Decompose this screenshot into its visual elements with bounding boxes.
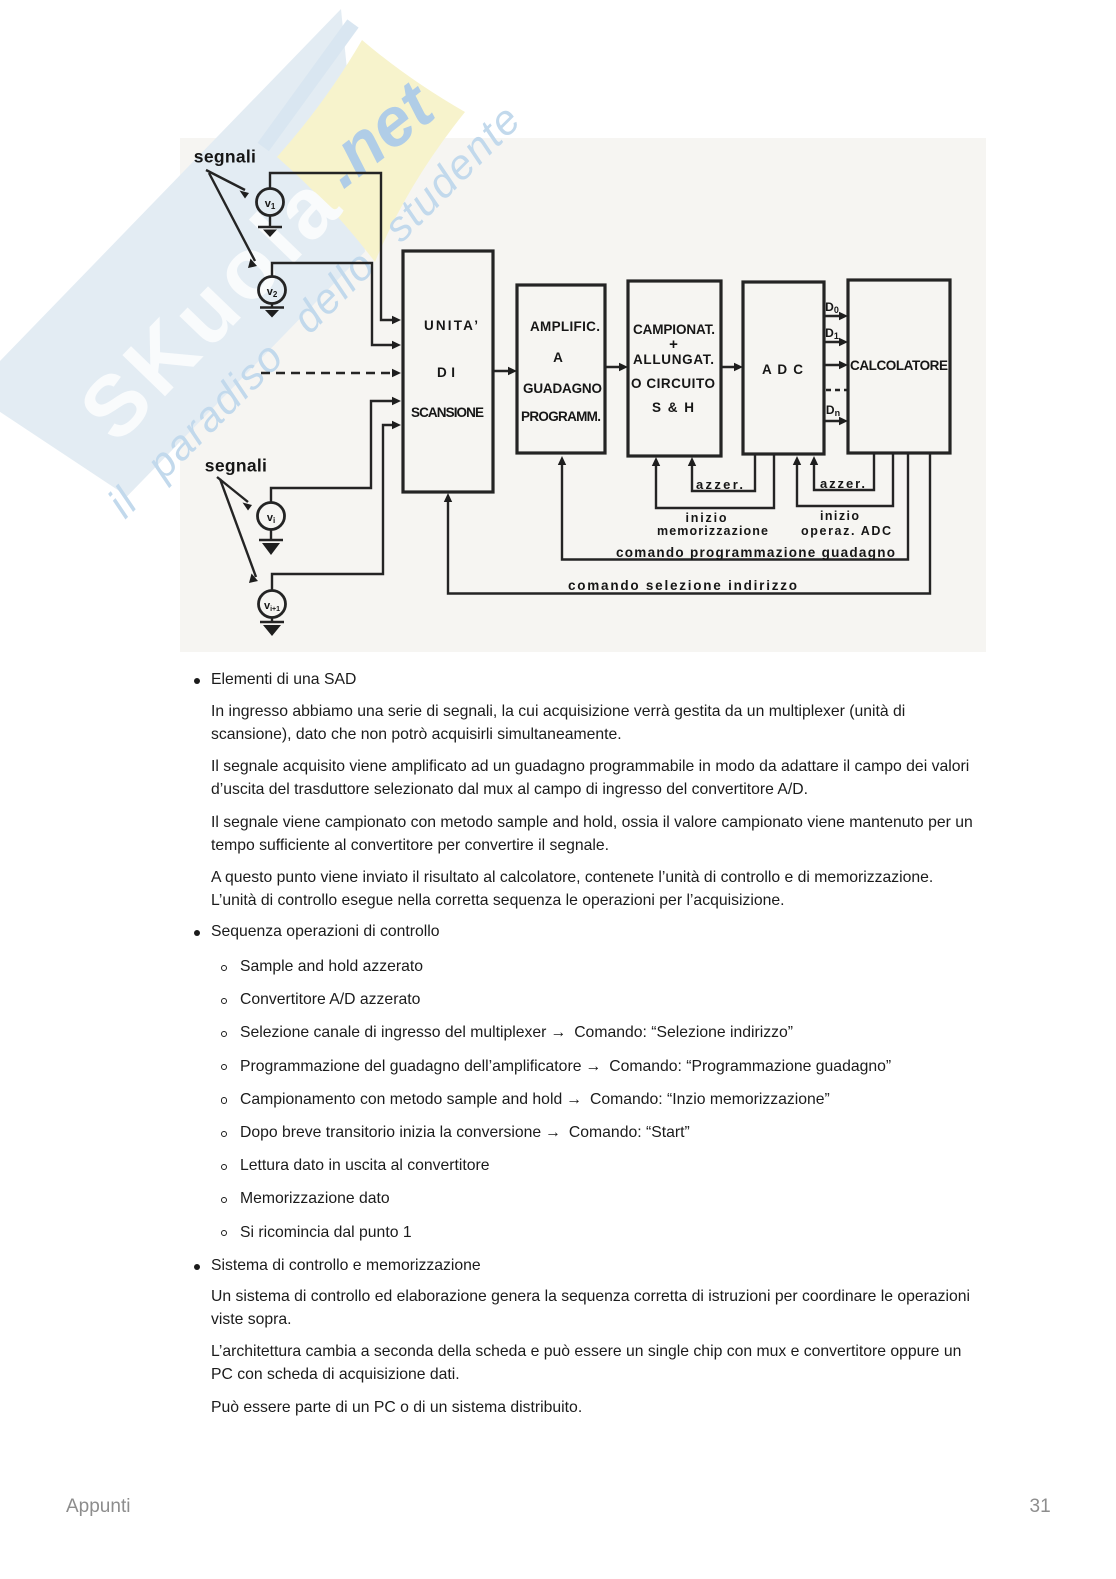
svg-text:PROGRAMM.: PROGRAMM. [521, 409, 601, 424]
svg-text:ALLUNGAT.: ALLUNGAT. [633, 352, 714, 367]
svg-text:comando selezione indirizzo: comando selezione indirizzo [568, 578, 797, 593]
svg-text:SCANSIONE: SCANSIONE [411, 405, 484, 420]
svg-text:A: A [553, 350, 563, 365]
svg-text:operaz. ADC: operaz. ADC [801, 524, 891, 538]
svg-text:inizio: inizio [686, 511, 727, 525]
svg-text:segnali: segnali [194, 147, 256, 167]
svg-text:CAMPIONAT.: CAMPIONAT. [633, 322, 715, 337]
svg-text:CALCOLATORE: CALCOLATORE [850, 358, 948, 373]
svg-text:O CIRCUITO: O CIRCUITO [631, 376, 715, 391]
svg-text:GUADAGNO: GUADAGNO [523, 381, 602, 396]
svg-text:comando programmazione guadagn: comando programmazione guadagno [616, 545, 895, 560]
svg-text:azzer.: azzer. [820, 476, 865, 491]
svg-text:S & H: S & H [652, 400, 694, 415]
svg-text:+: + [669, 336, 678, 353]
svg-text:memorizzazione: memorizzazione [657, 524, 768, 538]
svg-text:segnali: segnali [205, 456, 267, 476]
svg-text:UNITA’: UNITA’ [424, 318, 478, 333]
svg-text:azzer.: azzer. [696, 477, 743, 492]
svg-text:A D C: A D C [762, 362, 803, 377]
svg-text:DI: DI [437, 365, 455, 380]
svg-text:inizio: inizio [820, 509, 859, 523]
svg-text:AMPLIFIC.: AMPLIFIC. [530, 319, 600, 334]
